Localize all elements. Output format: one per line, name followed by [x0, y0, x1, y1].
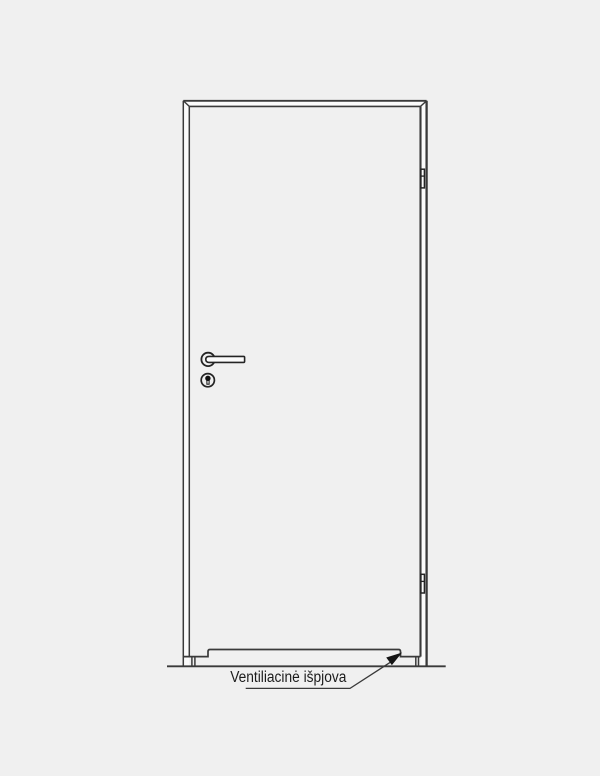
svg-text:Ventiliacinė išpjova: Ventiliacinė išpjova — [230, 669, 347, 686]
